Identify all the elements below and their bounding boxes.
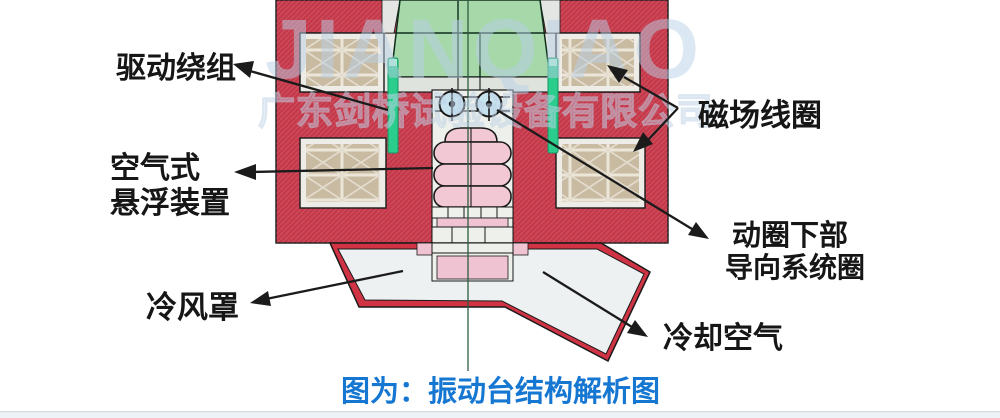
- bellows-lobe-1: [434, 142, 511, 164]
- bellows-lobe-3: [434, 186, 511, 207]
- bottom-divider: [0, 411, 1000, 413]
- watermark-brand: JIANQIAO: [265, 2, 703, 96]
- label-cooling-air: 冷却空气: [663, 322, 783, 355]
- watermark: JIANQIAO 广东剑桥试验设备有限公司: [258, 2, 714, 132]
- coil-support-upper: [432, 207, 513, 243]
- label-guide-coil-line2: 导向系统圈: [725, 251, 865, 283]
- diagram-canvas: JIANQIAO 广东剑桥试验设备有限公司: [0, 0, 1000, 418]
- coil-lacing-bottom-left: [306, 144, 380, 202]
- callout-cold-air-hood-arrowhead: [250, 291, 271, 306]
- bellows-lobe-2: [434, 164, 511, 186]
- callout-guide-coil-arrowhead: [688, 222, 709, 239]
- label-air-suspension-line2: 悬浮装置: [110, 187, 230, 220]
- support-band-3: [432, 243, 513, 253]
- support-base-pink: [437, 256, 508, 279]
- callout-air-suspension-arrowhead: [234, 164, 256, 180]
- support-band-2: [432, 227, 513, 243]
- shaker-structure-diagram: JIANQIAO 广东剑桥试验设备有限公司: [0, 0, 1000, 418]
- label-air-suspension-line1: 空气式: [110, 152, 200, 185]
- bottom-strip: [0, 413, 1000, 418]
- label-cold-air-hood: 冷风罩: [146, 290, 239, 325]
- callout-cooling-air-arrowhead: [627, 320, 648, 337]
- label-guide-coil-line1: 动圈下部: [732, 218, 848, 252]
- figure-caption: 图为：振动台结构解析图: [341, 374, 660, 408]
- support-pink-strip: [437, 218, 508, 227]
- watermark-company: 广东剑桥试验设备有限公司: [258, 90, 714, 132]
- support-tab-right: [513, 243, 528, 255]
- callout-drive-winding-arrowhead: [233, 61, 254, 78]
- support-tab-left: [417, 243, 432, 255]
- coil-support-lower: [417, 243, 528, 281]
- label-field-coil: 磁场线圈: [698, 98, 822, 133]
- support-band-1: [432, 207, 513, 218]
- label-drive-winding: 驱动绕组: [116, 51, 236, 85]
